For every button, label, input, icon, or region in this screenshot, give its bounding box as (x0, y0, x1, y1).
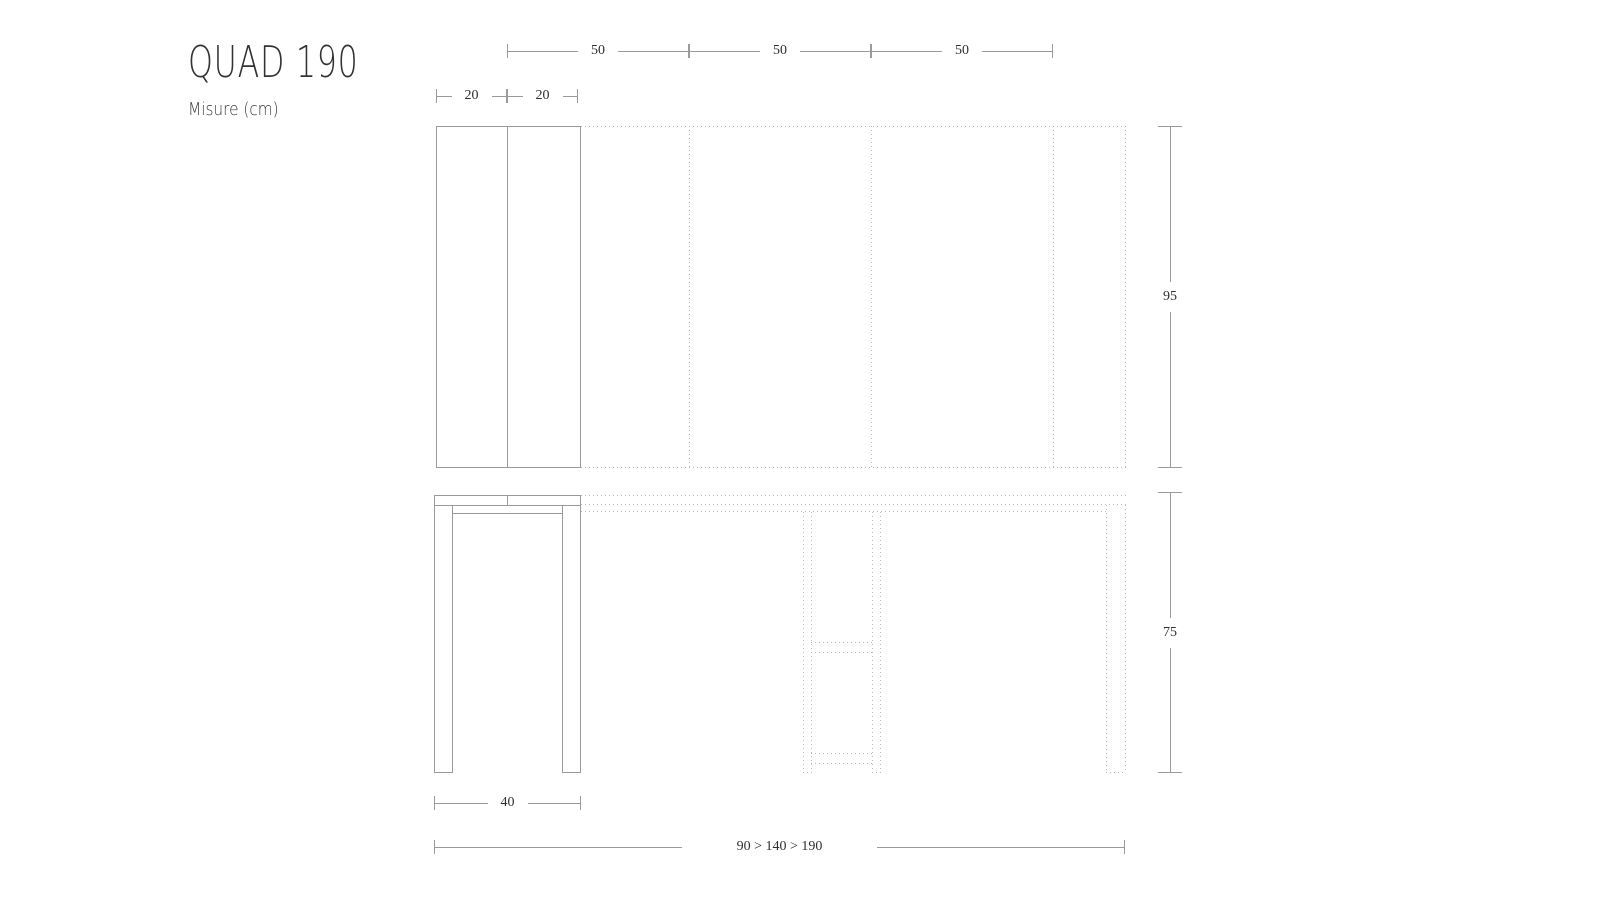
dim-tick (580, 796, 581, 810)
elev-left-leg (434, 505, 453, 773)
plan-leaf-separator-3 (1053, 126, 1054, 468)
dim-value: 75 (1163, 618, 1177, 648)
dim-line (982, 51, 1052, 52)
plan-closed-top-rect (436, 126, 581, 468)
plan-leaf-separator-2 (871, 126, 872, 468)
dim-base-width: 40 (434, 795, 581, 811)
dim-line (528, 803, 581, 804)
dim-closed-half-2: 20 (507, 88, 578, 104)
dim-leaf-width-2: 50 (689, 43, 871, 59)
dim-value: 40 (488, 795, 528, 811)
dim-value: 20 (523, 88, 563, 104)
dim-line (435, 803, 488, 804)
plan-extension-right-edge (1125, 126, 1126, 468)
dim-closed-half-1: 20 (436, 88, 507, 104)
elev-center-stretcher-bottom-line (811, 763, 872, 764)
dim-value: 50 (760, 43, 800, 59)
dim-width-range: 90 > 140 > 190 (434, 839, 1125, 855)
dim-line (1170, 493, 1171, 618)
elev-extension-top-line (581, 495, 1126, 496)
elev-extended-leg-right-edge (1125, 505, 1126, 773)
elev-center-leg-left-foot-cap (803, 772, 812, 773)
elev-tabletop-center-line (507, 495, 508, 506)
elev-extended-leg-foot-cap (1106, 772, 1126, 773)
plan-leaf-separator-1 (689, 126, 690, 468)
dim-line (563, 96, 578, 97)
technical-drawing-canvas: QUAD 190 Misure (cm) 50 50 50 20 20 (0, 0, 1600, 900)
dim-line (435, 847, 682, 848)
dim-tick (577, 89, 578, 103)
elev-center-stretcher-top-line (811, 753, 872, 754)
elev-apron-line (452, 513, 563, 514)
dim-value: 95 (1163, 282, 1177, 312)
elev-extension-apron-line (581, 511, 1106, 512)
dim-leaf-width-1: 50 (507, 43, 689, 59)
dim-value: 50 (578, 43, 618, 59)
plan-extension-top-edge (581, 126, 1126, 127)
dim-value: 20 (452, 88, 492, 104)
dim-line (800, 51, 870, 52)
dim-line (508, 96, 523, 97)
dim-leaf-width-3: 50 (871, 43, 1053, 59)
dim-line (877, 847, 1124, 848)
plan-extension-bottom-edge (581, 467, 1126, 468)
measure-unit-label: Misure (cm) (188, 100, 279, 120)
dim-depth: 95 (1158, 126, 1182, 468)
elev-center-shelf-bottom-line (811, 652, 872, 653)
elev-center-shelf-top-line (811, 642, 872, 643)
dim-line (508, 51, 578, 52)
dim-tick (1158, 772, 1182, 773)
elev-extended-leg-left-edge (1106, 505, 1107, 773)
dim-line (1170, 127, 1171, 282)
elev-center-leg-right-foot-cap (872, 772, 881, 773)
plan-closed-top-center-line (507, 126, 508, 468)
dim-line (437, 96, 452, 97)
dim-line (618, 51, 688, 52)
page-title: QUAD 190 (188, 40, 358, 86)
dim-line (492, 96, 507, 97)
dim-tick (1158, 467, 1182, 468)
elev-center-leg-outer-left (803, 512, 804, 772)
elev-extension-underside-line (581, 504, 1126, 505)
dim-line (1170, 648, 1171, 773)
elev-center-leg-inner-right (872, 512, 873, 772)
dim-line (872, 51, 942, 52)
dim-height: 75 (1158, 492, 1182, 773)
dim-value: 90 > 140 > 190 (682, 839, 878, 855)
elev-center-leg-outer-right (880, 512, 881, 772)
dim-tick (1124, 840, 1125, 854)
dim-line (1170, 312, 1171, 467)
dim-value: 50 (942, 43, 982, 59)
dim-tick (1052, 44, 1053, 58)
elev-right-front-leg (562, 505, 581, 773)
dim-line (690, 51, 760, 52)
